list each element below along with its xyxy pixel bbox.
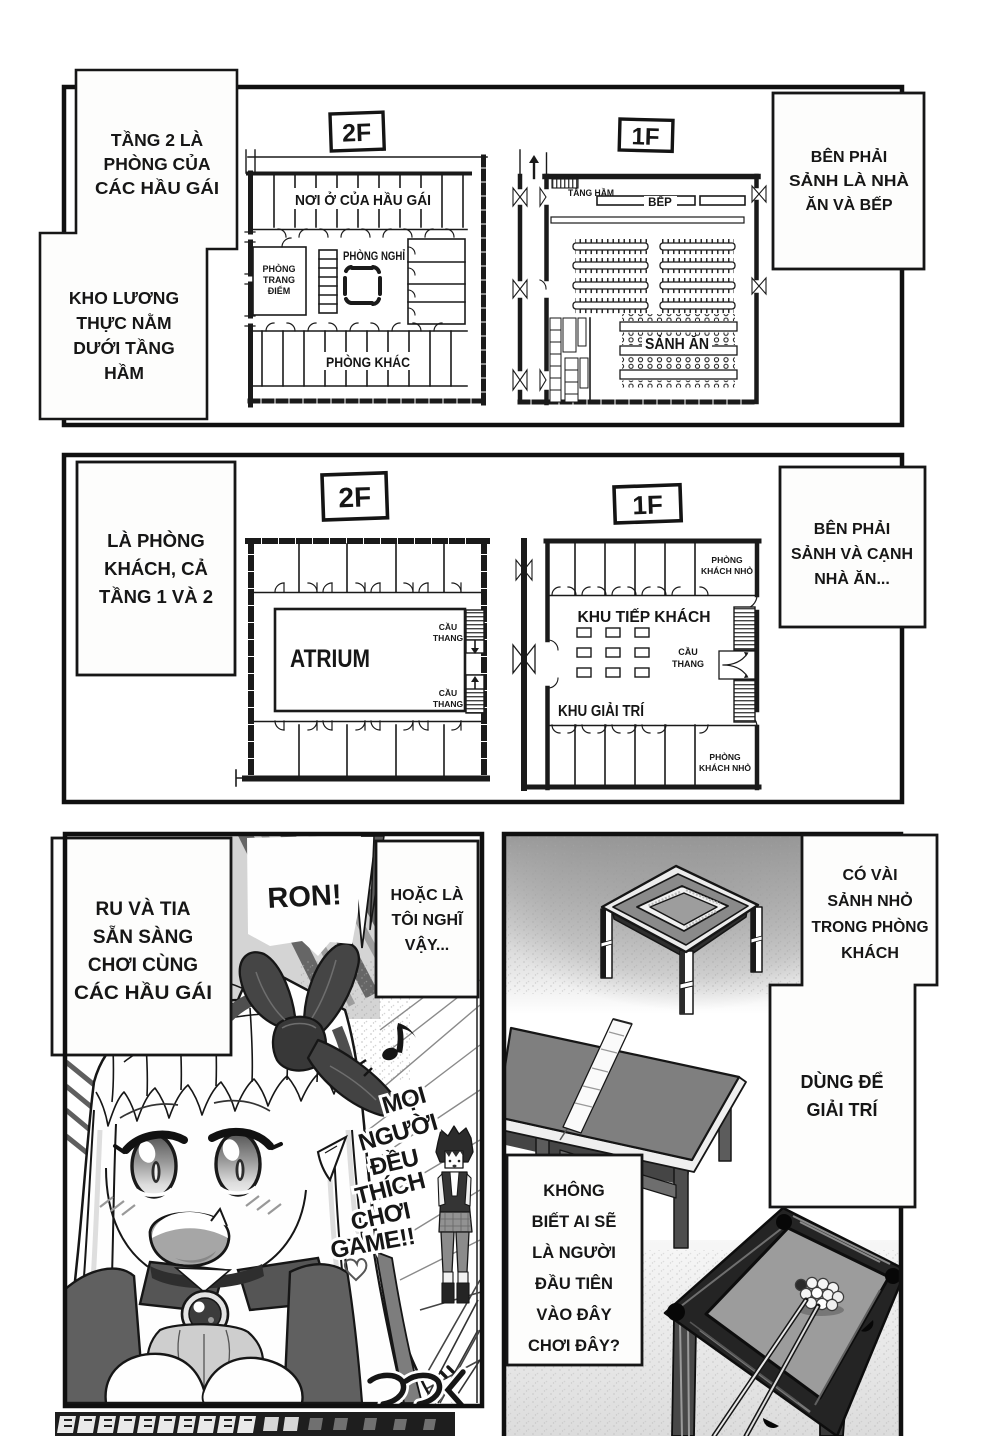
svg-text:NHÀ ĂN...: NHÀ ĂN...: [814, 569, 890, 588]
svg-text:CẦU: CẦU: [439, 622, 457, 632]
svg-text:TÔI NGHĨ: TÔI NGHĨ: [391, 909, 464, 929]
svg-text:HOẶC LÀ: HOẶC LÀ: [391, 885, 464, 904]
svg-text:ĐIỂM: ĐIỂM: [268, 285, 291, 296]
svg-text:ĐẦU TIÊN: ĐẦU TIÊN: [535, 1274, 613, 1293]
svg-text:1F: 1F: [631, 123, 660, 151]
svg-text:RON!: RON!: [267, 879, 343, 915]
svg-text:1F: 1F: [632, 489, 663, 520]
svg-text:CHƠI ĐÂY?: CHƠI ĐÂY?: [528, 1336, 620, 1355]
svg-text:LÀ PHÒNG: LÀ PHÒNG: [107, 530, 205, 551]
svg-text:KHO LƯƠNG: KHO LƯƠNG: [69, 288, 179, 308]
svg-text:CHƠI CÙNG: CHƠI CÙNG: [88, 954, 198, 976]
svg-text:TẦNG HẦM: TẦNG HẦM: [568, 188, 614, 198]
svg-text:SẢNH NHỎ: SẢNH NHỎ: [827, 891, 912, 910]
svg-text:KHÁCH NHỎ: KHÁCH NHỎ: [699, 762, 751, 773]
svg-text:RU VÀ TIA: RU VÀ TIA: [96, 898, 191, 920]
svg-text:SẢNH LÀ NHÀ: SẢNH LÀ NHÀ: [789, 171, 909, 190]
svg-text:CÓ VÀI: CÓ VÀI: [842, 865, 897, 884]
svg-text:PHÒNG: PHÒNG: [709, 751, 741, 762]
svg-text:PHÒNG KHÁC: PHÒNG KHÁC: [326, 353, 410, 370]
svg-text:2F: 2F: [338, 481, 372, 513]
svg-text:SẢNH ĂN: SẢNH ĂN: [645, 336, 709, 353]
svg-text:HẦM: HẦM: [104, 362, 144, 383]
svg-text:TẦNG 1 VÀ 2: TẦNG 1 VÀ 2: [99, 586, 213, 607]
svg-text:ĂN VÀ BẾP: ĂN VÀ BẾP: [805, 195, 892, 214]
svg-text:GIẢI TRÍ: GIẢI TRÍ: [807, 1099, 879, 1120]
svg-text:KHÔNG: KHÔNG: [543, 1181, 604, 1200]
svg-text:2F: 2F: [342, 119, 372, 148]
svg-text:TRONG PHÒNG: TRONG PHÒNG: [812, 917, 929, 936]
svg-text:CẦU: CẦU: [439, 688, 457, 698]
svg-text:KHU TIẾP KHÁCH: KHU TIẾP KHÁCH: [578, 607, 711, 626]
svg-text:CÁC HẦU GÁI: CÁC HẦU GÁI: [74, 982, 212, 1004]
svg-text:DƯỚI TẦNG: DƯỚI TẦNG: [73, 337, 174, 358]
svg-text:THANG: THANG: [672, 659, 704, 669]
svg-text:SẢNH VÀ CẠNH: SẢNH VÀ CẠNH: [791, 544, 913, 563]
svg-text:CÁC HẦU GÁI: CÁC HẦU GÁI: [95, 177, 219, 198]
svg-text:KHU GIẢI TRÍ: KHU GIẢI TRÍ: [558, 701, 644, 720]
svg-text:DÙNG ĐỂ: DÙNG ĐỂ: [800, 1071, 883, 1092]
svg-text:BÊN PHẢI: BÊN PHẢI: [811, 147, 887, 166]
svg-text:KHÁCH: KHÁCH: [841, 943, 899, 962]
svg-text:LÀ NGƯỜI: LÀ NGƯỜI: [532, 1243, 616, 1262]
svg-text:TRANG: TRANG: [263, 275, 295, 285]
svg-text:KHÁCH NHỎ: KHÁCH NHỎ: [701, 565, 753, 576]
svg-text:BÊN PHẢI: BÊN PHẢI: [814, 519, 890, 538]
svg-text:NƠI Ở CỦA HẦU GÁI: NƠI Ở CỦA HẦU GÁI: [295, 191, 431, 209]
svg-text:PHÒNG: PHÒNG: [711, 554, 743, 565]
svg-text:TẦNG 2 LÀ: TẦNG 2 LÀ: [111, 129, 204, 150]
svg-text:THANG: THANG: [433, 699, 464, 709]
svg-text:PHÒNG NGHỈ: PHÒNG NGHỈ: [343, 250, 406, 263]
svg-text:PHÒNG: PHÒNG: [262, 263, 295, 274]
svg-text:PHÒNG CỦA: PHÒNG CỦA: [104, 153, 211, 174]
svg-text:SẴN SÀNG: SẴN SÀNG: [93, 926, 193, 948]
svg-text:THANG: THANG: [433, 633, 464, 643]
svg-text:BẾP: BẾP: [648, 196, 672, 209]
svg-text:VẬY...: VẬY...: [405, 935, 449, 954]
svg-text:ATRIUM: ATRIUM: [290, 645, 370, 673]
svg-text:THỰC NẰM: THỰC NẰM: [76, 312, 171, 333]
svg-text:VÀO ĐÂY: VÀO ĐÂY: [536, 1305, 611, 1324]
svg-text:KHÁCH, CẢ: KHÁCH, CẢ: [104, 558, 208, 579]
svg-text:CẦU: CẦU: [678, 647, 698, 657]
svg-text:BIẾT AI SẼ: BIẾT AI SẼ: [532, 1211, 617, 1231]
